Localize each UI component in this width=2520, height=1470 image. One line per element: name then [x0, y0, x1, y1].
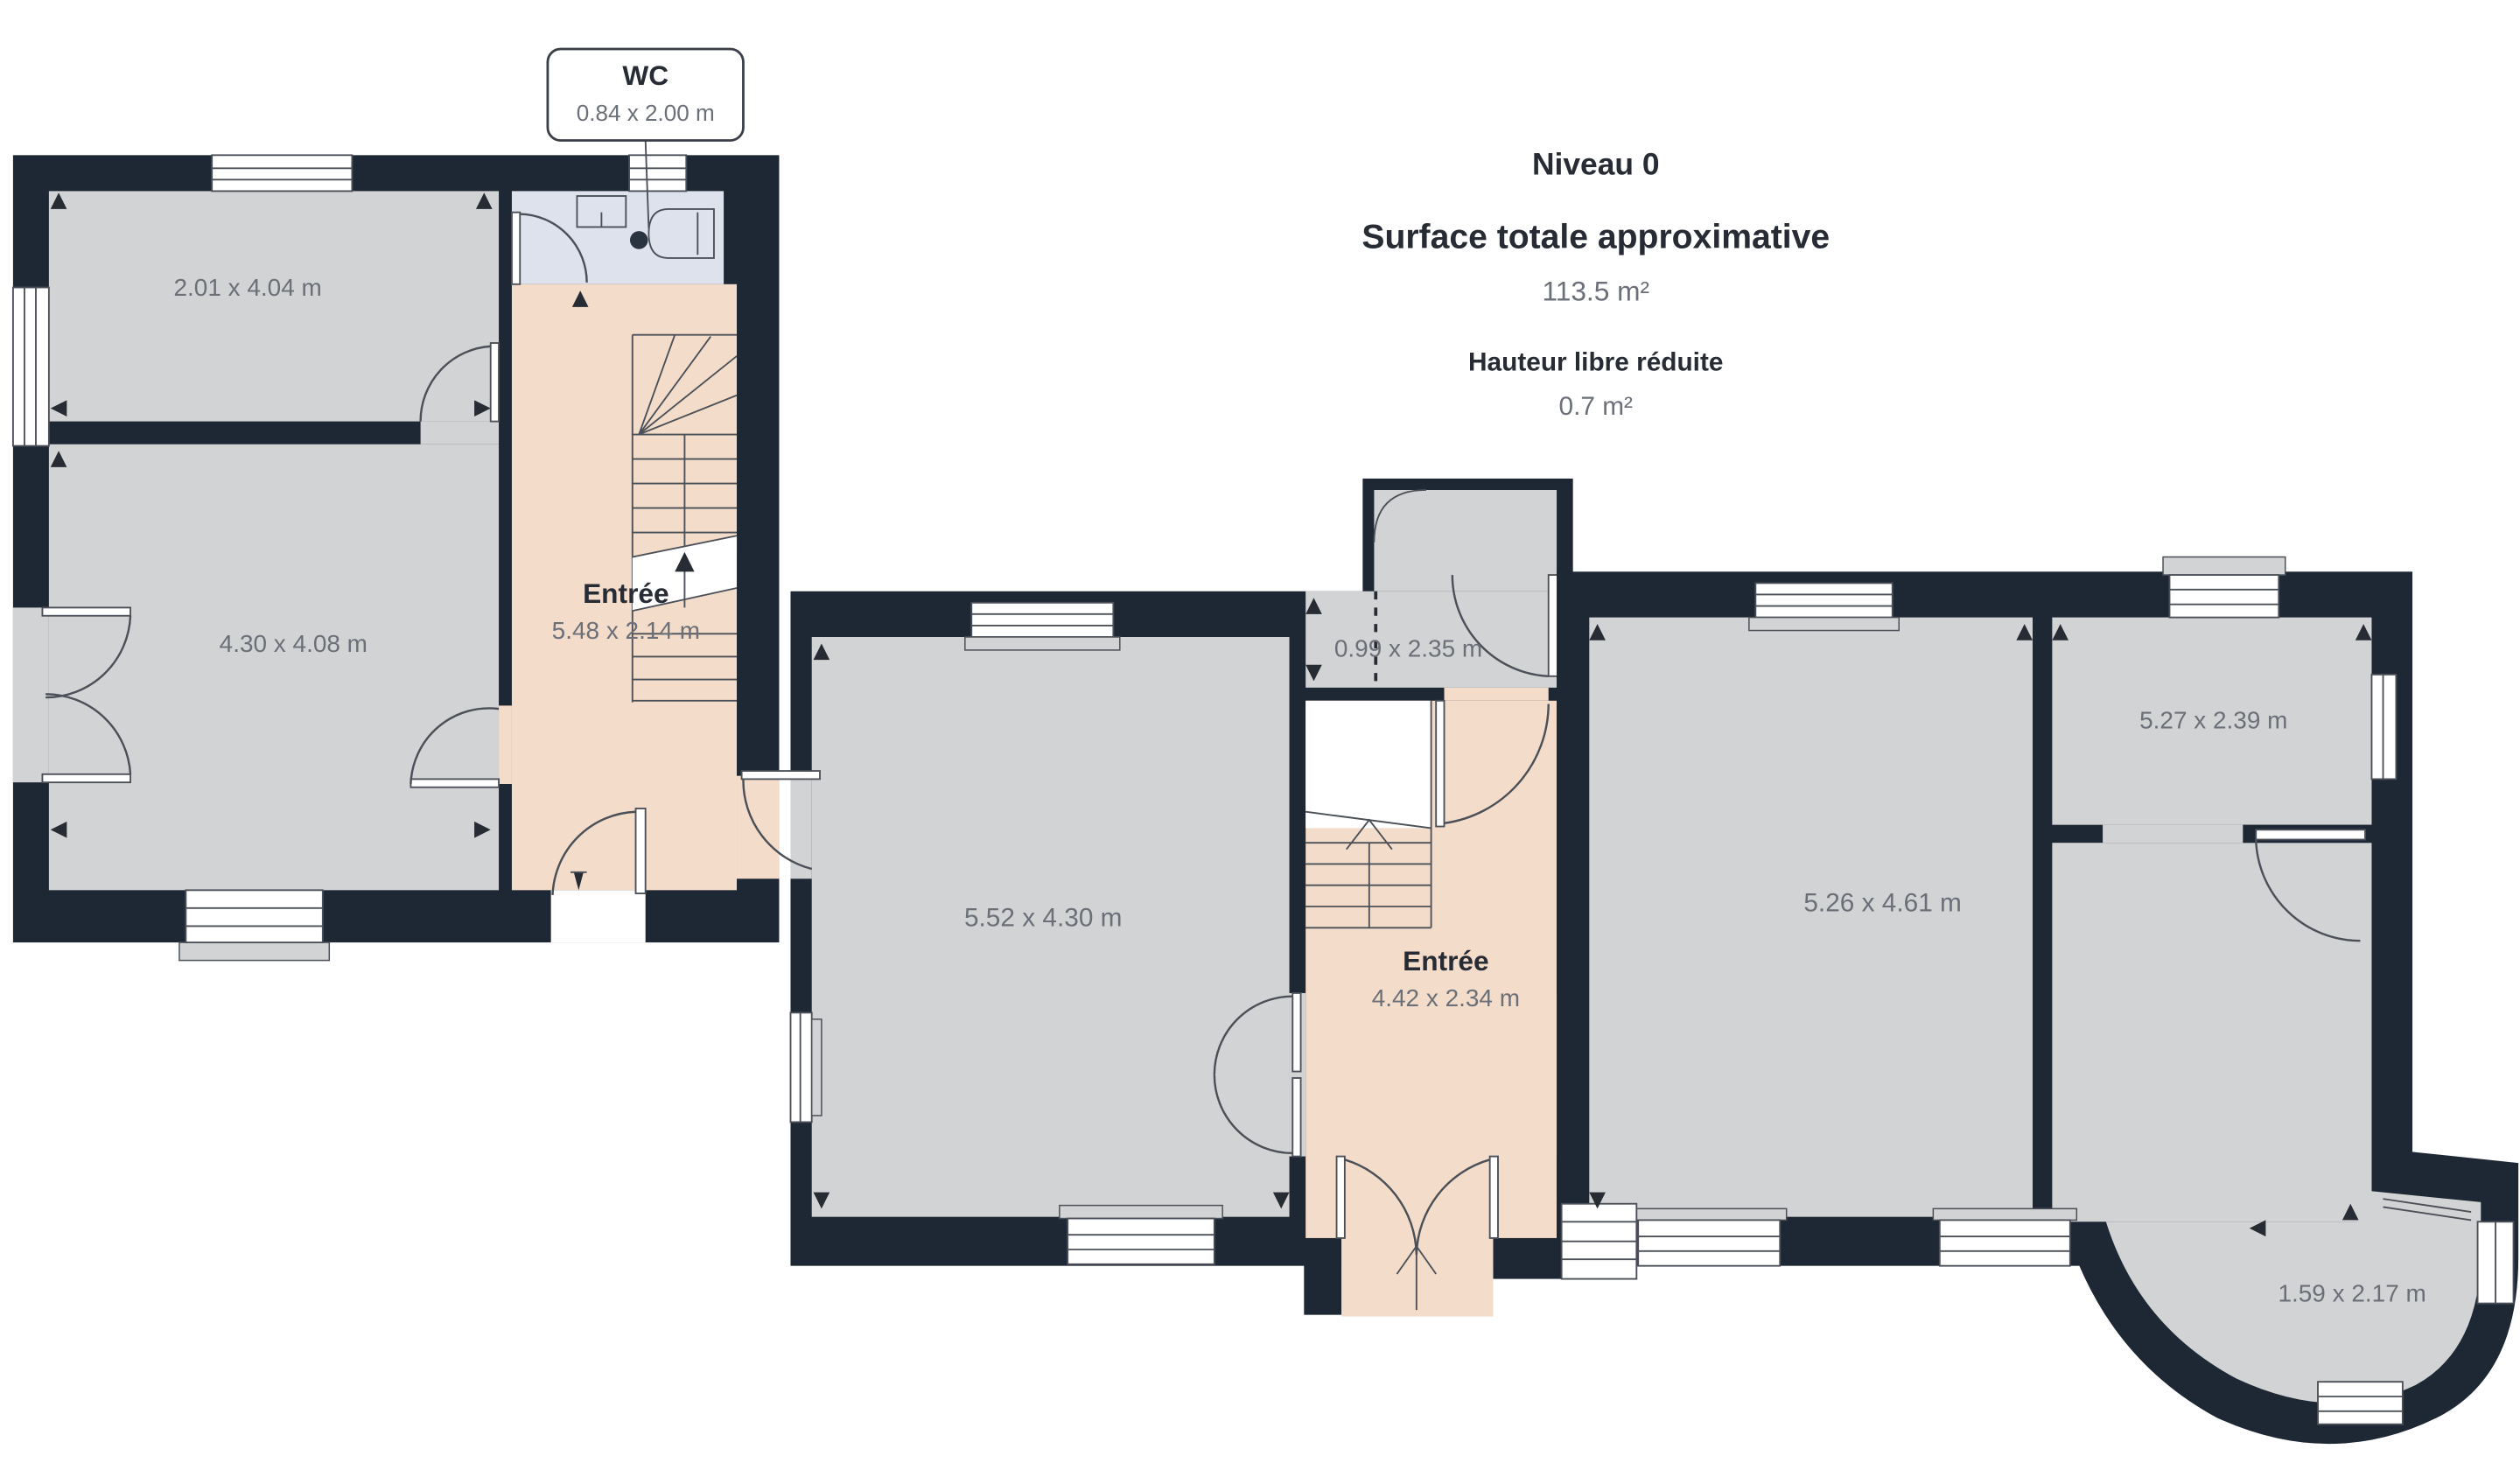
wc-toilet: [630, 231, 647, 249]
room-floor-room-a: [49, 191, 499, 421]
left-building: [13, 155, 780, 960]
window-sejour-top: [1749, 583, 1899, 630]
floorplan-canvas: 2.01 x 4.04 m 4.30 x 4.08 m Entrée 5.48 …: [0, 0, 2520, 1470]
window-bow-right: [2478, 1221, 2514, 1303]
window-sejour-bottom: [1632, 1208, 1787, 1265]
middle-building: [737, 479, 1648, 1317]
level-title: Niveau 0: [1532, 147, 1660, 182]
room-floor-corridor-bump: [1374, 490, 1557, 591]
window-room-b-bottom: [179, 890, 329, 960]
label-salon-dims: 5.52 x 4.30 m: [964, 903, 1123, 932]
room-floor-rear: [2052, 843, 2371, 1221]
surface-label: Surface totale approximative: [1361, 219, 1830, 256]
height-label: Hauteur libre réduite: [1468, 348, 1723, 377]
label-room-b-dims: 4.30 x 4.08 m: [220, 630, 367, 657]
label-entree2-name: Entrée: [1403, 945, 1489, 976]
label-sejour-dims: 5.26 x 4.61 m: [1803, 889, 1962, 918]
label-entree2-dims: 4.42 x 2.34 m: [1372, 984, 1520, 1011]
label-chambre-dims: 5.27 x 2.39 m: [2139, 707, 2287, 734]
window-salon-bottom: [1060, 1206, 1222, 1264]
surface-value: 113.5 m²: [1542, 275, 1649, 306]
window-rear-bottom: [1933, 1208, 2076, 1265]
window-wc-top: [629, 155, 686, 191]
window-room-a-top: [212, 155, 352, 191]
label-couloir-dims: 0.99 x 2.35 m: [1334, 634, 1482, 661]
label-entree1-dims: 5.48 x 2.14 m: [552, 617, 700, 644]
exterior-steps: [1562, 1204, 1637, 1279]
window-bow-bottom: [2318, 1382, 2403, 1424]
height-value: 0.7 m²: [1559, 392, 1634, 421]
window-salon-top: [965, 603, 1120, 650]
wc-callout-title: WC: [622, 59, 668, 91]
label-bow-dims: 1.59 x 2.17 m: [2278, 1280, 2425, 1307]
window-chambre-top: [2163, 557, 2285, 618]
window-chambre-right: [2371, 675, 2396, 779]
room-floor-room-b: [49, 444, 499, 891]
room-floor-wc: [512, 191, 724, 283]
window-room-a-left: [13, 288, 49, 446]
window-salon-left: [790, 1012, 821, 1122]
door-entree1-salon: [737, 771, 820, 878]
label-entree1-name: Entrée: [583, 577, 669, 609]
wc-callout-dims: 0.84 x 2.00 m: [577, 100, 715, 126]
label-room-a-dims: 2.01 x 4.04 m: [174, 274, 322, 301]
